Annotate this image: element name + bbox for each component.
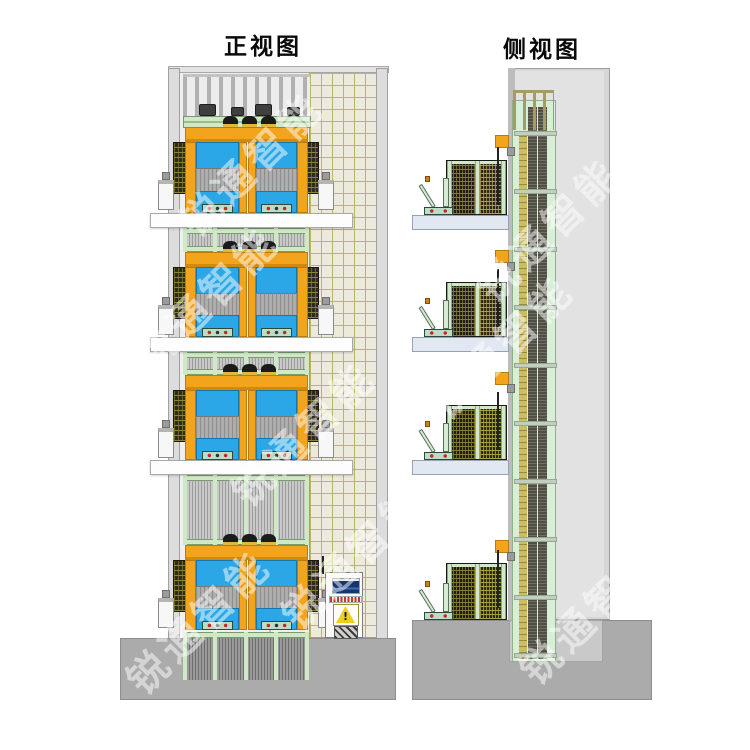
- level-4-bay-right: [256, 560, 297, 630]
- loading-post: [443, 300, 449, 329]
- level-3-crossbeam: [185, 375, 308, 390]
- side-control-box: [158, 428, 174, 458]
- side-control-box: [318, 428, 334, 458]
- loading-device-base: [424, 452, 453, 460]
- frame-column: [248, 560, 256, 630]
- side-floor-slab-3: [412, 460, 509, 475]
- bracket-connector: [322, 172, 330, 180]
- guide-pole: [497, 269, 499, 327]
- frame-column: [239, 267, 247, 337]
- machine-base: [261, 328, 292, 337]
- frame-column: [297, 390, 308, 460]
- floor-slab-2: [150, 337, 353, 352]
- cabinet-antenna: [322, 556, 324, 574]
- side-control-box: [318, 305, 334, 335]
- frame-column: [297, 560, 308, 630]
- bracket-connector: [322, 420, 330, 428]
- loading-arm-tip: [425, 581, 430, 587]
- hoist-diagram-canvas: 正视图 侧视图: [0, 0, 750, 750]
- loading-device-base: [424, 207, 453, 215]
- loading-arm: [419, 184, 436, 208]
- frame-column: [185, 390, 196, 460]
- front-right-column: [376, 68, 388, 640]
- electric-hazard-icon: [334, 626, 358, 639]
- level-4-bay-left: [196, 560, 239, 630]
- loading-post: [443, 178, 449, 207]
- loading-post: [443, 583, 449, 612]
- loading-arm: [419, 429, 436, 453]
- bracket-connector: [507, 384, 515, 393]
- loading-device-base: [424, 329, 453, 337]
- loading-arm: [419, 306, 436, 330]
- machine-base: [202, 451, 233, 460]
- side-control-box: [318, 180, 334, 210]
- level-3-bay-right: [256, 390, 297, 460]
- side-control-box: [158, 180, 174, 210]
- machine-base: [261, 621, 292, 630]
- guide-pole: [497, 550, 499, 608]
- loading-arm: [419, 589, 436, 613]
- machine-base: [202, 204, 233, 213]
- floor-slab-3: [150, 460, 353, 475]
- guide-pole: [497, 147, 499, 205]
- frame-column: [248, 390, 256, 460]
- loading-arm-tip: [425, 421, 430, 427]
- bracket-connector: [507, 147, 515, 156]
- loading-device-base: [424, 612, 453, 620]
- loading-arm-tip: [425, 176, 430, 182]
- roof-trolley-icon: [231, 107, 244, 116]
- frame-column: [185, 267, 196, 337]
- warning-glyph: !: [343, 610, 348, 623]
- frame-column: [297, 142, 308, 213]
- frame-column: [185, 142, 196, 213]
- roof-trolley-icon: [255, 104, 272, 116]
- bracket-connector: [162, 590, 170, 598]
- roof-trolley-icon: [199, 104, 216, 116]
- side-view-title: 侧视图: [503, 30, 581, 64]
- hoist-mast: [512, 100, 556, 662]
- machine-base: [261, 451, 292, 460]
- warning-triangle-icon: !: [333, 604, 359, 626]
- loading-arm-tip: [425, 298, 430, 304]
- mast-top-railing: [513, 90, 554, 130]
- frame-column: [239, 560, 247, 630]
- machine-base: [202, 621, 233, 630]
- side-control-box: [158, 598, 174, 628]
- level-2-bay-left: [196, 267, 239, 337]
- level-1-crossbeam: [185, 127, 308, 142]
- level-2-crossbeam: [185, 252, 308, 267]
- side-floor-slab-1: [412, 215, 509, 230]
- frame-column: [239, 390, 247, 460]
- bracket-connector: [162, 420, 170, 428]
- fence-segment-below-grade: [183, 632, 309, 680]
- machine-base: [261, 204, 292, 213]
- level-1-bay-right: [256, 142, 297, 213]
- frame-column: [248, 267, 256, 337]
- frame-column: [239, 142, 247, 213]
- bracket-connector: [162, 172, 170, 180]
- front-view-title: 正视图: [224, 27, 302, 61]
- ladder-icon: [519, 131, 527, 659]
- bracket-connector: [507, 552, 515, 561]
- front-right-lattice: [309, 72, 377, 638]
- machine-base: [202, 328, 233, 337]
- bracket-connector: [322, 297, 330, 305]
- indicator-lights-icon: [329, 596, 363, 603]
- side-control-box: [158, 305, 174, 335]
- roof-trolley-icon: [287, 107, 300, 116]
- control-cabinet: !: [325, 572, 363, 638]
- frame-column: [185, 560, 196, 630]
- frame-column: [297, 267, 308, 337]
- side-floor-slab-2: [412, 337, 509, 352]
- floor-slab-1: [150, 213, 353, 228]
- front-top-beam: [168, 66, 389, 73]
- level-1-bay-left: [196, 142, 239, 213]
- level-4-crossbeam: [185, 545, 308, 560]
- display-screen-icon: [332, 578, 360, 594]
- bracket-connector: [507, 262, 515, 271]
- loading-post: [443, 423, 449, 452]
- guide-pole: [497, 392, 499, 450]
- level-2-bay-right: [256, 267, 297, 337]
- level-3-bay-left: [196, 390, 239, 460]
- bracket-connector: [162, 297, 170, 305]
- frame-column: [248, 142, 256, 213]
